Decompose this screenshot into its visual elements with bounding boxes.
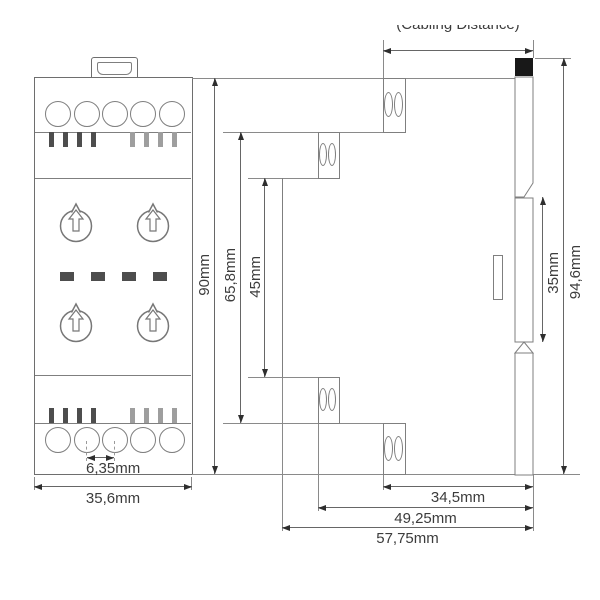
vent-slot (144, 408, 149, 423)
dim-label-front-width: 35,6mm (34, 490, 192, 507)
extension-line (318, 424, 319, 511)
dim-label-rail-height: 35mm (545, 252, 562, 294)
vent-slot (63, 408, 68, 423)
terminal-opening (394, 92, 403, 117)
dim-label-body-span: 45mm (247, 256, 264, 298)
extension-line (223, 423, 405, 424)
extension-line (533, 475, 534, 531)
top-surface-line (192, 78, 383, 79)
dim-label-terminal-span: 65,8mm (222, 248, 239, 302)
dim-line-depth-total (282, 527, 533, 528)
rear-panel (514, 57, 535, 476)
dim-line-terminal-pitch (87, 457, 114, 458)
adjustment-dial (135, 199, 171, 243)
dim-label-depth-to-terminals: 34,5mm (383, 489, 533, 506)
vent-slot (49, 132, 54, 147)
terminal-screw (102, 427, 128, 453)
side-front-edge (282, 178, 283, 377)
dim-label-depth-total: 57,75mm (282, 530, 533, 547)
terminal-screw (74, 101, 100, 127)
terminal-opening (328, 388, 336, 411)
cabling-distance-label-clipped: (Cabling Distance) (383, 25, 533, 36)
rail-latch (515, 342, 533, 353)
adjustment-dial (58, 299, 94, 343)
vent-slot (158, 408, 163, 423)
terminal-screw (45, 427, 71, 453)
terminal-opening (384, 436, 393, 461)
front-divider-top (35, 132, 191, 133)
led-indicator (153, 272, 167, 281)
din-rail-slot (493, 255, 503, 300)
dim-line-rail-height (542, 197, 543, 342)
vent-slot (49, 408, 54, 423)
vent-slot (91, 132, 96, 147)
vent-slot (63, 132, 68, 147)
terminal-screw (159, 101, 185, 127)
vent-slot (77, 408, 82, 423)
dim-line-total-height (563, 58, 564, 474)
dim-line-front-width (34, 486, 192, 487)
dim-line-depth-to-terminals (383, 486, 533, 487)
adjustment-dial (58, 199, 94, 243)
dim-label-front-height: 90mm (196, 254, 213, 296)
terminal-opening (319, 388, 327, 411)
terminal-opening (384, 92, 393, 117)
led-indicator (60, 272, 74, 281)
terminal-screw (45, 101, 71, 127)
vent-slot (172, 408, 177, 423)
dim-line-body-span (264, 178, 265, 377)
terminal-opening (394, 436, 403, 461)
vent-slot (77, 132, 82, 147)
extension-line (282, 377, 283, 531)
dim-line-front-height (214, 78, 215, 474)
vent-slot (158, 132, 163, 147)
dim-line-cabling-distance (383, 50, 533, 51)
vent-slot (130, 408, 135, 423)
extension-line (383, 40, 384, 78)
dim-line-terminal-span (240, 132, 241, 423)
led-indicator (91, 272, 105, 281)
front-divider-upper (35, 178, 191, 179)
black-marker (515, 58, 533, 76)
adjustment-dial (135, 299, 171, 343)
terminal-screw (74, 427, 100, 453)
vent-slot (172, 132, 177, 147)
terminal-screw (102, 101, 128, 127)
front-divider-bottom (35, 423, 191, 424)
extension-line (223, 132, 405, 133)
front-divider-lower (35, 375, 191, 376)
terminal-screw (130, 427, 156, 453)
vent-slot (144, 132, 149, 147)
terminal-opening (319, 143, 327, 166)
extension-line (114, 441, 115, 461)
terminal-opening (328, 143, 336, 166)
dimension-drawing: 6,35mm 35,6mm 90mm 65,8mm 45mm 35mm (0, 0, 600, 600)
dim-label-depth-mid: 49,25mm (318, 510, 533, 527)
terminal-screw (130, 101, 156, 127)
front-view-outline (34, 77, 193, 475)
extension-line (533, 40, 534, 58)
top-surface-line (405, 78, 515, 79)
terminal-screw (159, 427, 185, 453)
led-indicator (122, 272, 136, 281)
dim-line-depth-mid (318, 507, 533, 508)
vent-slot (91, 408, 96, 423)
dim-label-terminal-pitch: 6,35mm (86, 460, 140, 477)
mounting-clip-inner (97, 62, 132, 75)
dim-label-total-height: 94,6mm (567, 245, 584, 299)
vent-slot (130, 132, 135, 147)
